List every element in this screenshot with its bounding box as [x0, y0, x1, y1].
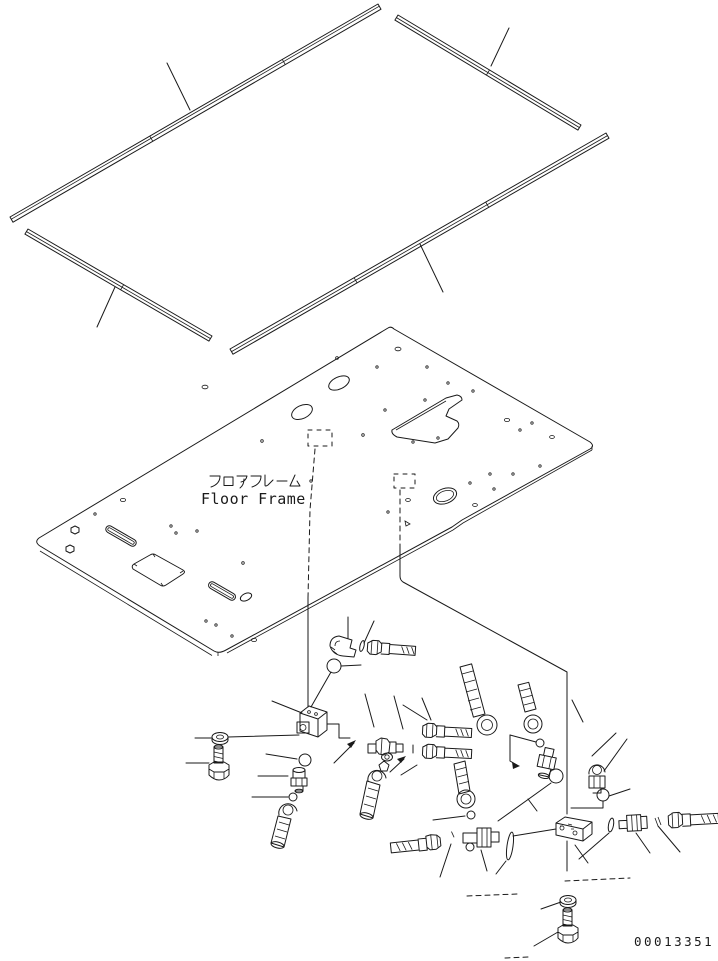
manifold-block-1	[297, 706, 327, 737]
threaded-hose-end-b	[518, 682, 542, 733]
label-en: Floor Frame	[201, 490, 306, 508]
washer-1	[212, 733, 228, 745]
o-ring-5	[607, 818, 614, 833]
callout-box-2	[394, 474, 415, 488]
o-ring-2	[289, 793, 297, 801]
straight-connector-top	[367, 640, 416, 657]
plate-thickness-edge	[40, 446, 592, 656]
strip-leader-lines	[97, 28, 509, 327]
bolt-2	[558, 908, 578, 943]
plate-notch-cutout	[392, 395, 462, 443]
plate-hole-oval-2	[289, 401, 314, 422]
connector-mid-right	[535, 747, 558, 780]
hydraulic-fittings	[186, 617, 718, 958]
ball-3	[549, 769, 563, 783]
hose-connector-4	[390, 831, 455, 854]
callout-box-1	[308, 430, 332, 446]
label-jp: フロアフレーム	[208, 476, 299, 491]
diagram-canvas: フロアフレーム Floor Frame	[0, 0, 718, 961]
elbow-hose-end-mid	[359, 770, 386, 820]
ball-1	[327, 659, 341, 673]
sheet-part-number: 00013351	[634, 934, 714, 949]
elbow-fitting-top	[330, 636, 356, 657]
hose-connector-1	[422, 723, 472, 740]
weather-strips	[10, 4, 609, 354]
floor-frame-plate: フロアフレーム Floor Frame	[37, 327, 593, 871]
plate-hex-hole-1	[71, 526, 79, 534]
hidden-leader-1	[308, 449, 315, 598]
weather-strip-front	[230, 133, 609, 354]
nipple-connector	[291, 768, 307, 793]
o-ring-7	[505, 832, 515, 861]
threaded-hose-end-c	[454, 761, 475, 808]
threaded-hose-end-a	[460, 664, 497, 735]
tee-fitting-1	[368, 738, 403, 761]
plate-outline	[37, 327, 593, 652]
ball-2	[299, 754, 311, 766]
plate-hex-hole-2	[66, 545, 74, 553]
weather-strip-rear	[10, 4, 381, 222]
fitting-leader-lines	[186, 617, 680, 958]
o-ring-6	[655, 817, 661, 826]
plate-hole-oval-1	[326, 373, 351, 393]
plate-square-hole	[132, 554, 184, 586]
bolt-1	[209, 745, 229, 780]
pentagon-plug	[379, 761, 389, 771]
plate-hole-oval-3	[431, 485, 459, 507]
hose-connector-3	[668, 810, 718, 828]
o-ring-1	[359, 640, 366, 652]
weather-strip-right	[395, 15, 581, 130]
manifold-block-2	[556, 817, 592, 841]
washer-2	[560, 896, 576, 908]
plate-slot-2	[207, 580, 236, 601]
plate-hole-small-oval	[239, 591, 253, 602]
plate-small-holes	[94, 347, 555, 641]
o-ring-3	[467, 811, 475, 819]
hose-connector-2	[422, 744, 472, 761]
plate-slot-1	[105, 524, 138, 547]
weather-strip-left	[25, 229, 212, 341]
o-ring-4	[536, 739, 544, 747]
ball-4	[597, 789, 609, 801]
plug-right	[619, 814, 648, 831]
floor-frame-label: フロアフレーム Floor Frame	[201, 475, 306, 508]
elbow-hose-end-left	[270, 804, 297, 850]
parts-diagram-sheet: フロアフレーム Floor Frame	[0, 0, 718, 961]
tee-fitting-2	[463, 828, 499, 851]
